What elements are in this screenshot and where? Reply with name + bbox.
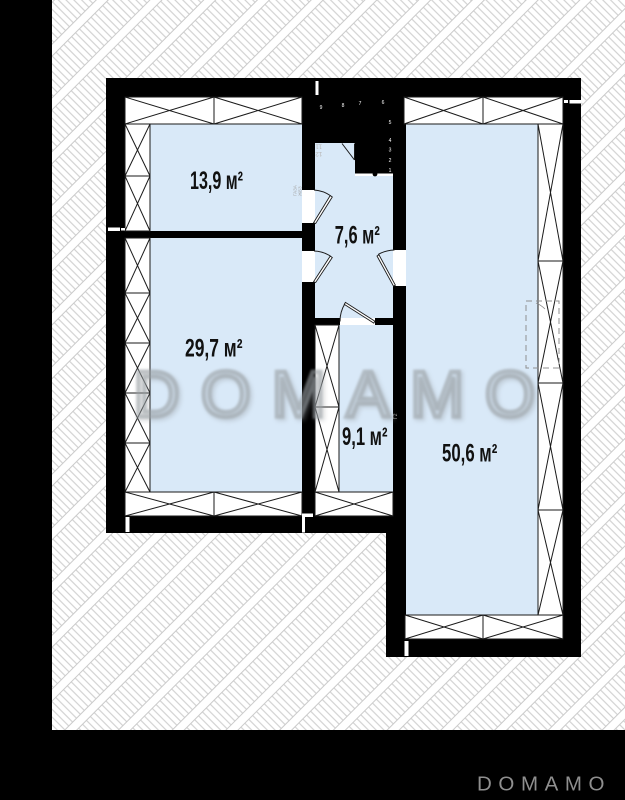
svg-text:ЖБ3: ЖБ3 bbox=[298, 186, 303, 196]
svg-text:9: 9 bbox=[320, 105, 323, 111]
svg-text:5: 5 bbox=[389, 120, 392, 126]
svg-text:4: 4 bbox=[389, 138, 392, 144]
svg-text:DOMAMO: DOMAMO bbox=[133, 358, 556, 431]
svg-text:1: 1 bbox=[389, 168, 392, 174]
svg-text:7,6 м²: 7,6 м² bbox=[335, 222, 380, 250]
svg-text:6: 6 bbox=[382, 100, 385, 106]
svg-text:50,6 м²: 50,6 м² bbox=[442, 439, 497, 467]
svg-text:11: 11 bbox=[315, 143, 322, 150]
svg-text:12: 12 bbox=[315, 150, 323, 157]
svg-text:7: 7 bbox=[359, 101, 362, 107]
svg-text:2: 2 bbox=[389, 158, 392, 164]
svg-text:13,9 м²: 13,9 м² bbox=[190, 167, 243, 195]
svg-text:3: 3 bbox=[389, 148, 392, 154]
svg-text:8: 8 bbox=[342, 103, 345, 109]
